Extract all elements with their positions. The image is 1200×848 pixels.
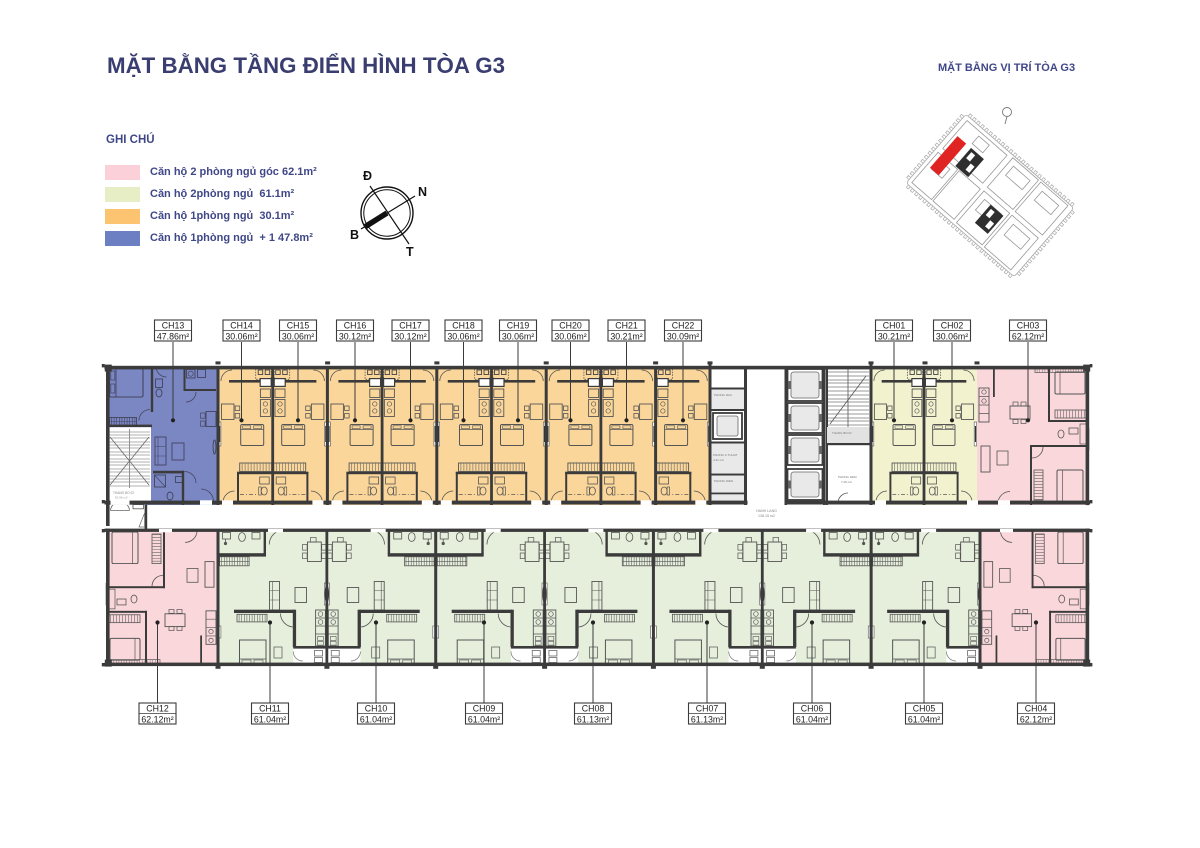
svg-text:CH20: CH20 <box>559 321 582 331</box>
svg-text:THANG BO 02: THANG BO 02 <box>113 491 134 495</box>
svg-text:30.06m²: 30.06m² <box>554 332 586 342</box>
svg-text:61.13m²: 61.13m² <box>577 715 609 725</box>
svg-text:B: B <box>350 228 359 242</box>
svg-text:30.06m²: 30.06m² <box>447 332 479 342</box>
svg-text:47.86m²: 47.86m² <box>157 332 189 342</box>
svg-text:CH13: CH13 <box>162 321 185 331</box>
svg-text:CH03: CH03 <box>1017 321 1040 331</box>
svg-text:30.21m²: 30.21m² <box>878 332 910 342</box>
svg-text:CH15: CH15 <box>287 321 310 331</box>
svg-text:CH10: CH10 <box>365 704 388 714</box>
svg-text:30.21m²: 30.21m² <box>610 332 642 342</box>
svg-text:CH05: CH05 <box>913 704 936 714</box>
svg-text:CH07: CH07 <box>696 704 719 714</box>
svg-text:CH06: CH06 <box>801 704 824 714</box>
svg-text:61.04m²: 61.04m² <box>468 715 500 725</box>
svg-text:CH19: CH19 <box>507 321 530 331</box>
svg-text:61.04m²: 61.04m² <box>254 715 286 725</box>
svg-text:PHONG DEM: PHONG DEM <box>838 475 857 479</box>
svg-text:THANG BO 01: THANG BO 01 <box>832 431 852 435</box>
svg-text:61.13m²: 61.13m² <box>691 715 723 725</box>
svg-text:61.04m²: 61.04m² <box>796 715 828 725</box>
svg-text:Đ: Đ <box>363 169 372 183</box>
svg-text:CH11: CH11 <box>259 704 281 714</box>
svg-text:61.04m²: 61.04m² <box>908 715 940 725</box>
svg-text:PHONG RAC: PHONG RAC <box>714 393 733 397</box>
svg-text:138.15 m2: 138.15 m2 <box>758 514 775 518</box>
svg-text:CH22: CH22 <box>672 321 695 331</box>
svg-text:T: T <box>406 245 414 259</box>
svg-text:30.06m²: 30.06m² <box>282 332 314 342</box>
svg-text:30.12m²: 30.12m² <box>339 332 371 342</box>
svg-text:CH16: CH16 <box>344 321 367 331</box>
svg-text:N: N <box>418 185 427 199</box>
svg-text:CH12: CH12 <box>146 704 169 714</box>
svg-text:CH18: CH18 <box>452 321 475 331</box>
svg-text:CH08: CH08 <box>582 704 605 714</box>
svg-text:30.06m²: 30.06m² <box>225 332 257 342</box>
svg-text:53.96 m2: 53.96 m2 <box>115 496 128 500</box>
svg-text:30.06m²: 30.06m² <box>936 332 968 342</box>
svg-text:30.12m²: 30.12m² <box>394 332 426 342</box>
svg-text:CH09: CH09 <box>473 704 496 714</box>
svg-text:4.41 m2: 4.41 m2 <box>713 458 724 462</box>
svg-text:CH14: CH14 <box>230 321 253 331</box>
svg-text:30.06m²: 30.06m² <box>502 332 534 342</box>
svg-text:61.04m²: 61.04m² <box>360 715 392 725</box>
svg-text:7.46 m2: 7.46 m2 <box>841 480 852 484</box>
svg-text:HANH LANG: HANH LANG <box>756 509 777 513</box>
svg-text:PHONG DIEN: PHONG DIEN <box>714 479 733 483</box>
svg-text:CH21: CH21 <box>615 321 638 331</box>
svg-text:62.12m²: 62.12m² <box>141 715 173 725</box>
svg-text:62.12m²: 62.12m² <box>1012 332 1044 342</box>
svg-text:CH17: CH17 <box>399 321 422 331</box>
svg-text:30.09m²: 30.09m² <box>667 332 699 342</box>
svg-text:CH02: CH02 <box>941 321 964 331</box>
svg-text:CH01: CH01 <box>883 321 906 331</box>
svg-text:PHONG K.THUAT: PHONG K.THUAT <box>713 453 738 457</box>
svg-text:CH04: CH04 <box>1025 704 1048 714</box>
svg-text:62.12m²: 62.12m² <box>1020 715 1052 725</box>
